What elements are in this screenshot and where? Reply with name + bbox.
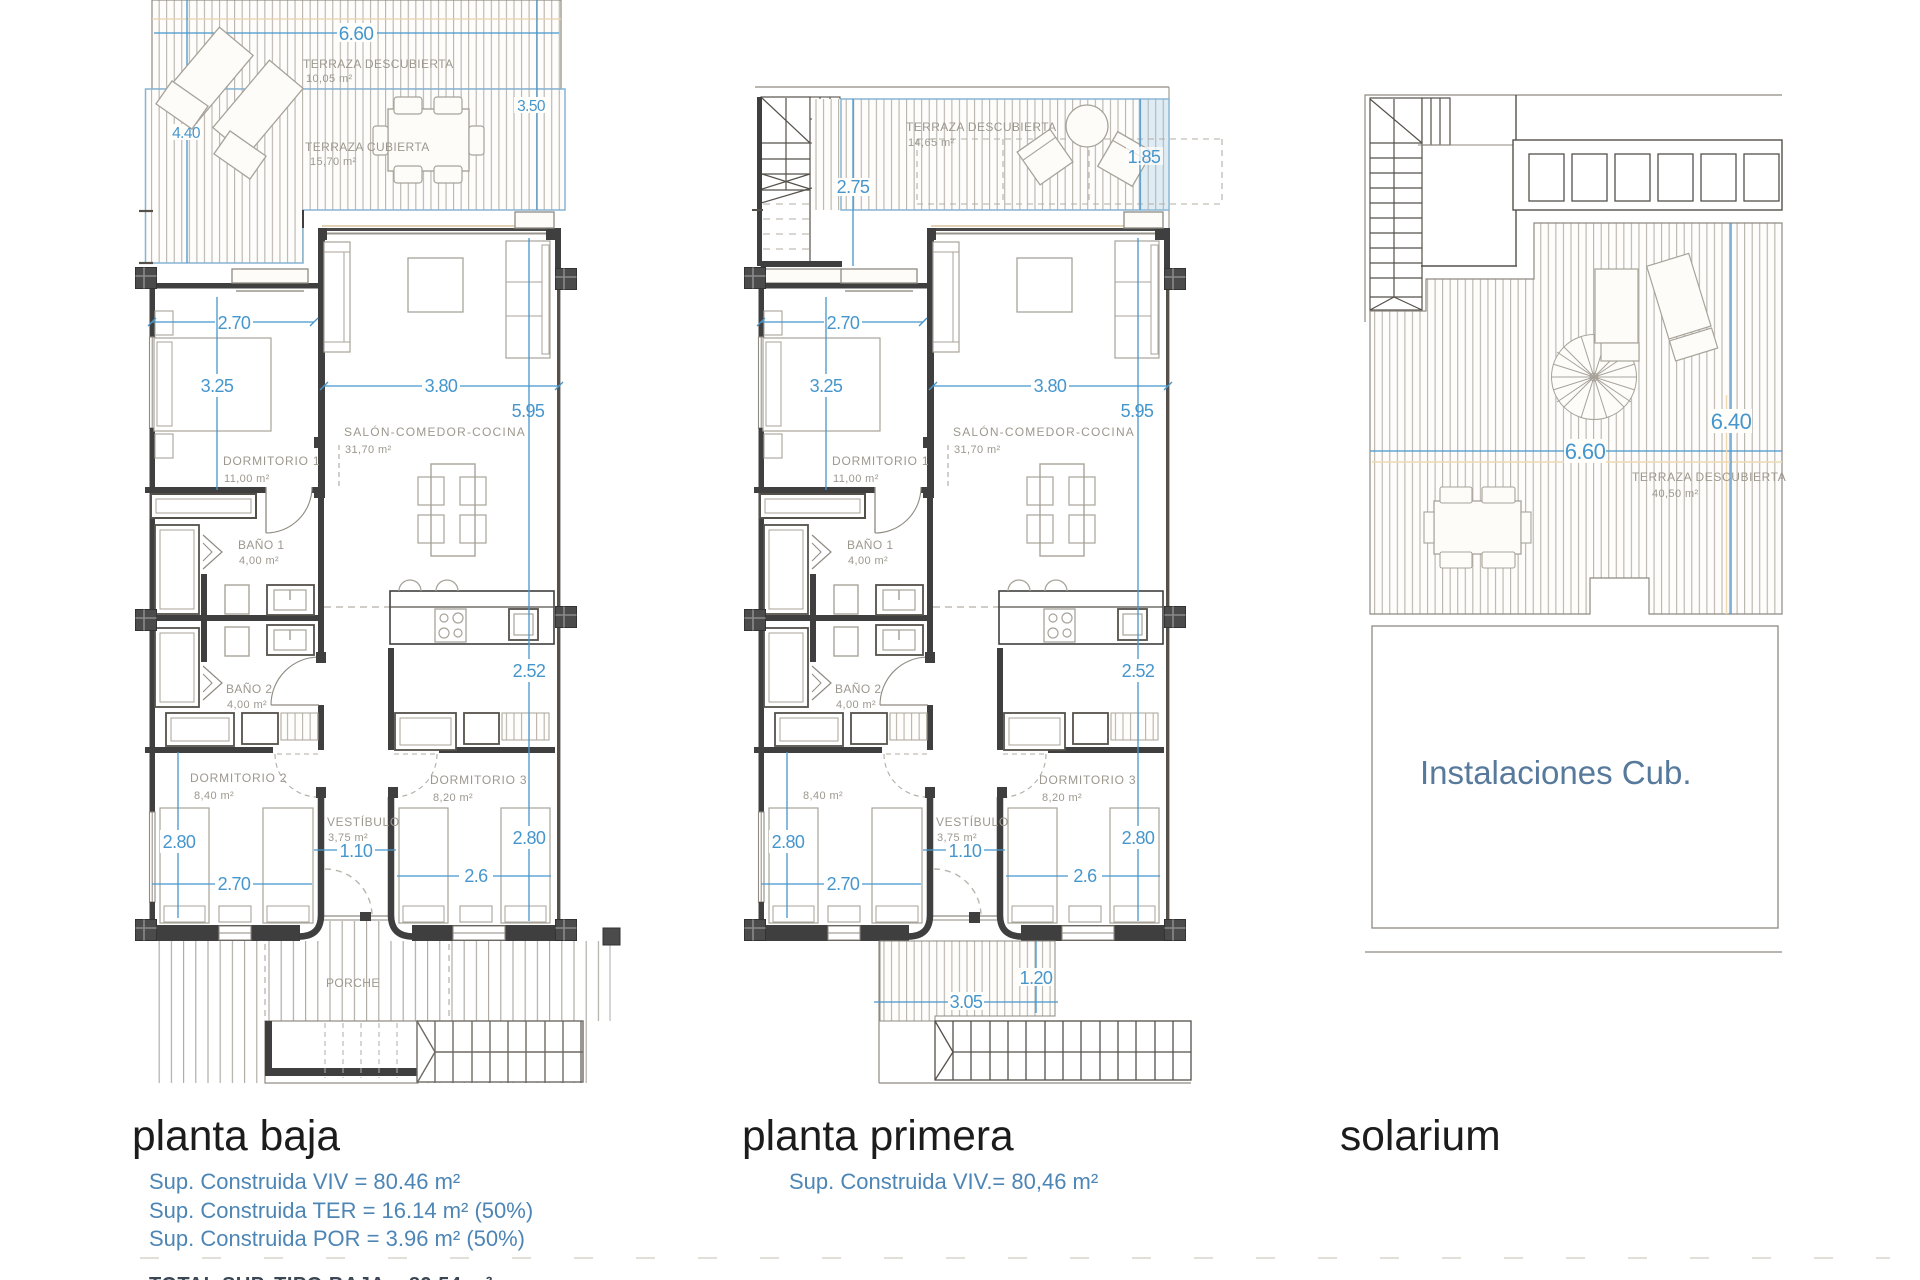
svg-text:planta primera: planta primera xyxy=(742,1113,1014,1160)
svg-text:Sup. Construida VIV.= 80,46 m²: Sup. Construida VIV.= 80,46 m² xyxy=(789,1169,1098,1194)
svg-text:DORMITORIO 2: DORMITORIO 2 xyxy=(190,771,287,785)
svg-text:Instalaciones Cub.: Instalaciones Cub. xyxy=(1420,754,1692,791)
svg-text:6.60: 6.60 xyxy=(339,24,374,45)
svg-text:TERRAZA DESCUBIERTA: TERRAZA DESCUBIERTA xyxy=(1632,470,1786,484)
svg-text:VESTÍBULO: VESTÍBULO xyxy=(327,814,400,829)
svg-text:11,00 m²: 11,00 m² xyxy=(224,473,270,485)
svg-text:10,05 m²: 10,05 m² xyxy=(306,73,353,85)
svg-text:PORCHE: PORCHE xyxy=(326,976,380,990)
svg-text:2.80: 2.80 xyxy=(513,828,546,848)
svg-text:3.50: 3.50 xyxy=(517,98,546,115)
svg-text:3.80: 3.80 xyxy=(425,376,458,396)
svg-text:solarium: solarium xyxy=(1340,1113,1501,1160)
svg-text:8,20 m²: 8,20 m² xyxy=(433,792,473,804)
svg-text:SALÓN-COMEDOR-COCINA: SALÓN-COMEDOR-COCINA xyxy=(344,424,526,439)
svg-text:BAÑO 2: BAÑO 2 xyxy=(226,682,272,696)
svg-text:1.85: 1.85 xyxy=(1128,147,1161,167)
svg-text:6.40: 6.40 xyxy=(1711,409,1752,434)
svg-text:DORMITORIO 1: DORMITORIO 1 xyxy=(223,454,320,468)
svg-text:6.60: 6.60 xyxy=(1565,439,1606,464)
svg-text:Sup. Construida VIV = 80.46 m²: Sup. Construida VIV = 80.46 m² xyxy=(149,1169,460,1194)
svg-text:TERRAZA CUBIERTA: TERRAZA CUBIERTA xyxy=(305,140,430,154)
svg-text:planta baja: planta baja xyxy=(132,1113,340,1160)
svg-text:4,00 m²: 4,00 m² xyxy=(227,699,267,711)
svg-text:3.05: 3.05 xyxy=(950,992,983,1012)
svg-text:5.95: 5.95 xyxy=(512,401,545,421)
svg-text:Sup. Construida TER = 16.14 m²: Sup. Construida TER = 16.14 m² (50%) xyxy=(149,1198,533,1223)
svg-text:DORMITORIO 3: DORMITORIO 3 xyxy=(430,773,527,787)
svg-text:Sup. Construida POR = 3.96 m²: Sup. Construida POR = 3.96 m² (50%) xyxy=(149,1226,525,1251)
svg-text:TERRAZA DESCUBIERTA: TERRAZA DESCUBIERTA xyxy=(303,57,454,71)
svg-text:4.40: 4.40 xyxy=(172,125,201,142)
svg-text:14,65 m²: 14,65 m² xyxy=(908,137,955,149)
svg-text:2.52: 2.52 xyxy=(513,661,546,681)
svg-text:31,70 m²: 31,70 m² xyxy=(345,444,392,456)
svg-text:2.70: 2.70 xyxy=(218,313,251,333)
svg-text:1.20: 1.20 xyxy=(1020,968,1053,988)
svg-text:8,40 m²: 8,40 m² xyxy=(194,790,234,802)
svg-text:2.70: 2.70 xyxy=(218,874,251,894)
svg-text:BAÑO 1: BAÑO 1 xyxy=(238,538,284,552)
svg-text:TERRAZA DESCUBIERTA: TERRAZA DESCUBIERTA xyxy=(906,120,1057,134)
svg-text:3,75 m²: 3,75 m² xyxy=(328,832,368,844)
svg-text:1.10: 1.10 xyxy=(340,841,373,861)
svg-text:2.6: 2.6 xyxy=(464,866,488,886)
svg-text:4,00 m²: 4,00 m² xyxy=(239,555,279,567)
svg-text:2.80: 2.80 xyxy=(163,832,196,852)
svg-text:TOTAL SUP. TIPO BAJA = 89.54 m: TOTAL SUP. TIPO BAJA = 89.54 m² xyxy=(149,1274,493,1280)
svg-text:40,50 m²: 40,50 m² xyxy=(1652,488,1699,500)
svg-text:15,70 m²: 15,70 m² xyxy=(310,156,357,168)
svg-text:3.25: 3.25 xyxy=(201,376,234,396)
svg-text:2.75: 2.75 xyxy=(837,177,870,197)
